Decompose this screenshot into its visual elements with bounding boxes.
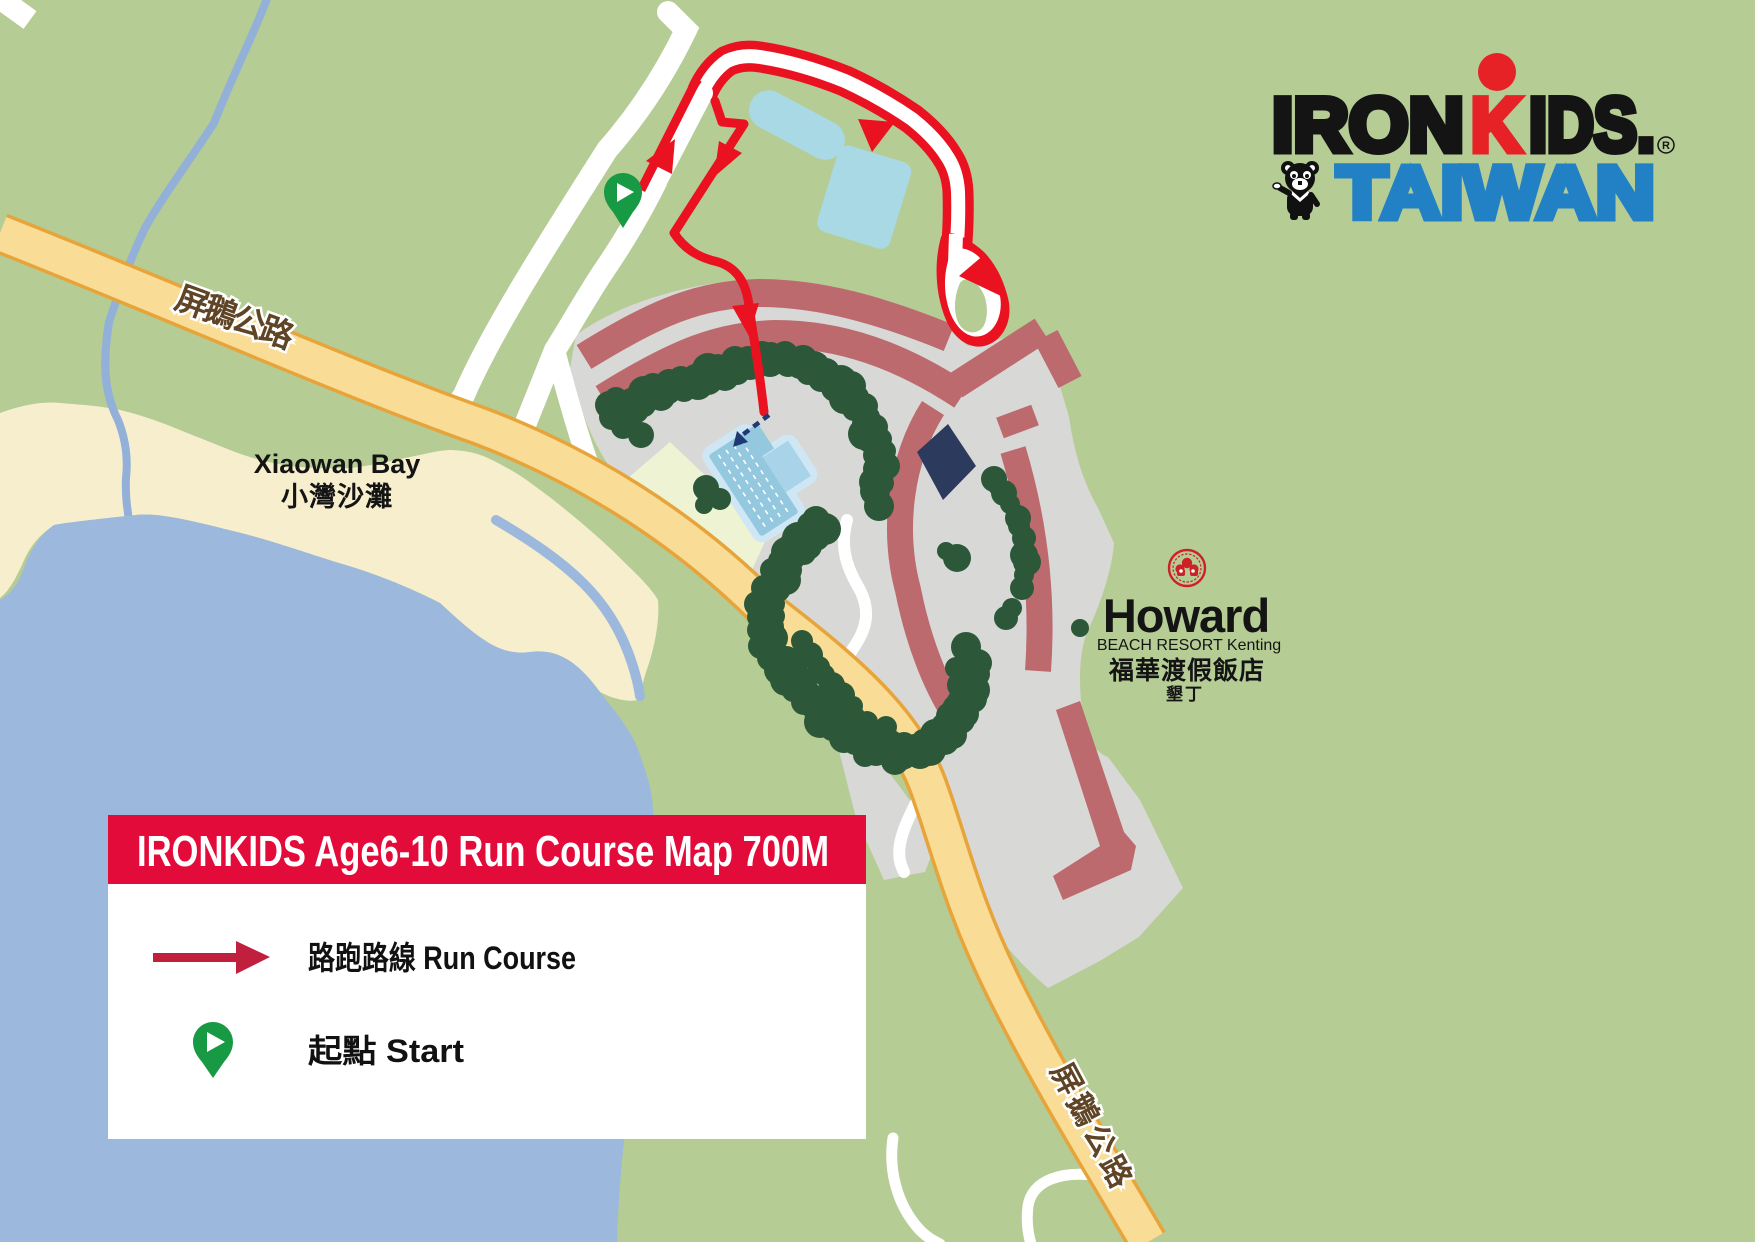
svg-text:Howard: Howard xyxy=(1103,589,1269,642)
svg-text:TAIWAN: TAIWAN xyxy=(1337,151,1655,234)
svg-text:R: R xyxy=(1662,140,1670,152)
svg-text:Xiaowan Bay: Xiaowan Bay xyxy=(254,449,421,479)
svg-text:墾丁: 墾丁 xyxy=(1166,685,1204,704)
svg-text:BEACH RESORT Kenting: BEACH RESORT Kenting xyxy=(1097,637,1281,654)
svg-text:IRONKIDS Age6-10 Run Course Ma: IRONKIDS Age6-10 Run Course Map 700M xyxy=(137,827,829,876)
svg-text:路跑路線 Run Course: 路跑路線 Run Course xyxy=(308,940,576,976)
svg-text:福華渡假飯店: 福華渡假飯店 xyxy=(1108,656,1265,685)
svg-text:起點 Start: 起點 Start xyxy=(308,1033,464,1069)
svg-text:小灣沙灘: 小灣沙灘 xyxy=(281,482,393,512)
